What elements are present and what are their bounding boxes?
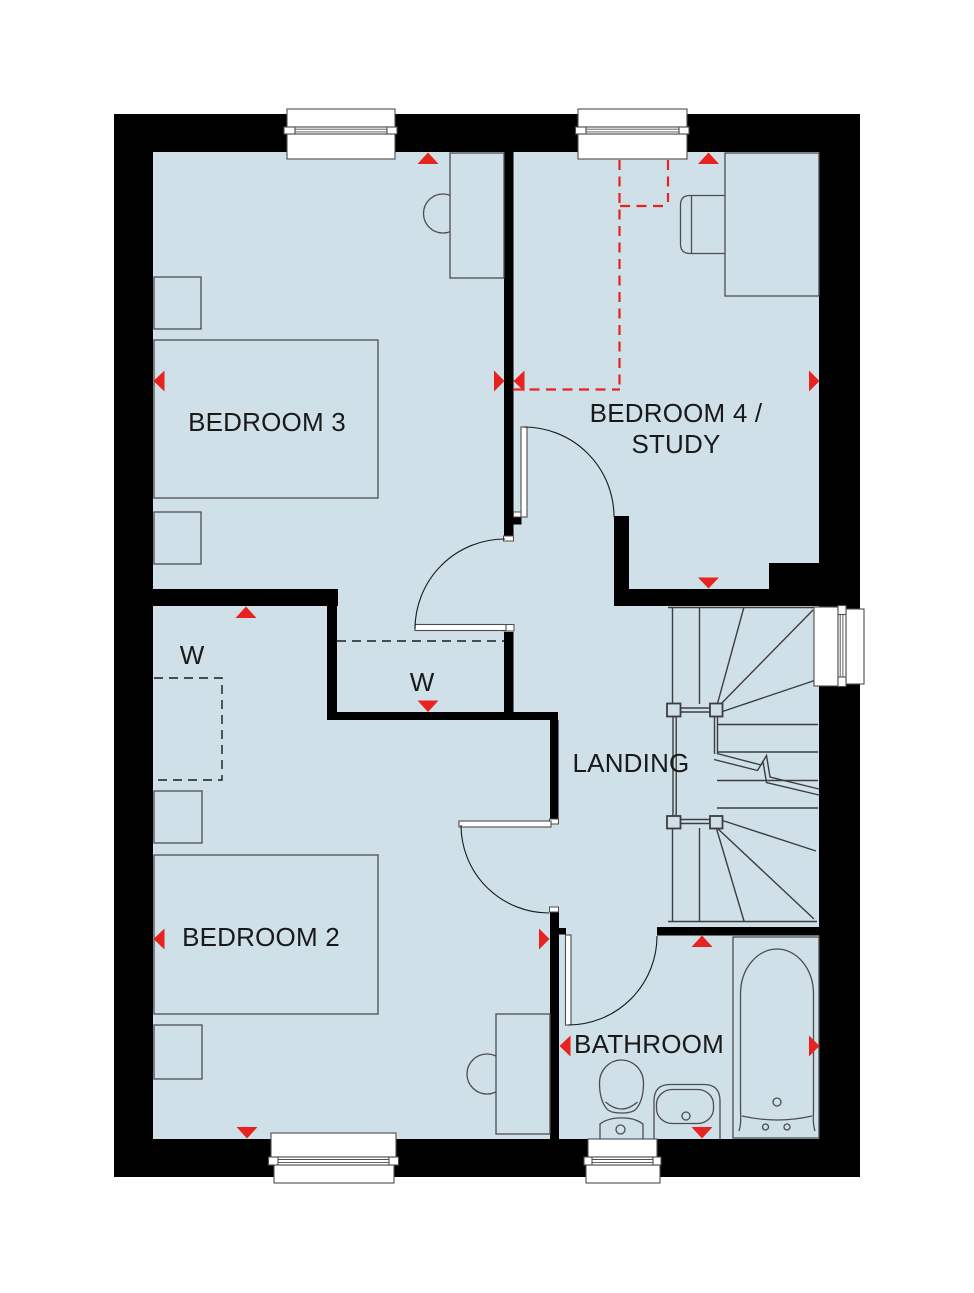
svg-text:BATHROOM: BATHROOM (574, 1029, 724, 1059)
svg-text:W: W (410, 667, 435, 697)
svg-text:LANDING: LANDING (573, 748, 690, 778)
svg-text:BEDROOM 4 /: BEDROOM 4 / (590, 398, 763, 428)
svg-text:BEDROOM 2: BEDROOM 2 (182, 922, 340, 952)
svg-text:STUDY: STUDY (631, 429, 720, 459)
svg-text:W: W (180, 640, 205, 670)
svg-text:BEDROOM 3: BEDROOM 3 (188, 407, 346, 437)
